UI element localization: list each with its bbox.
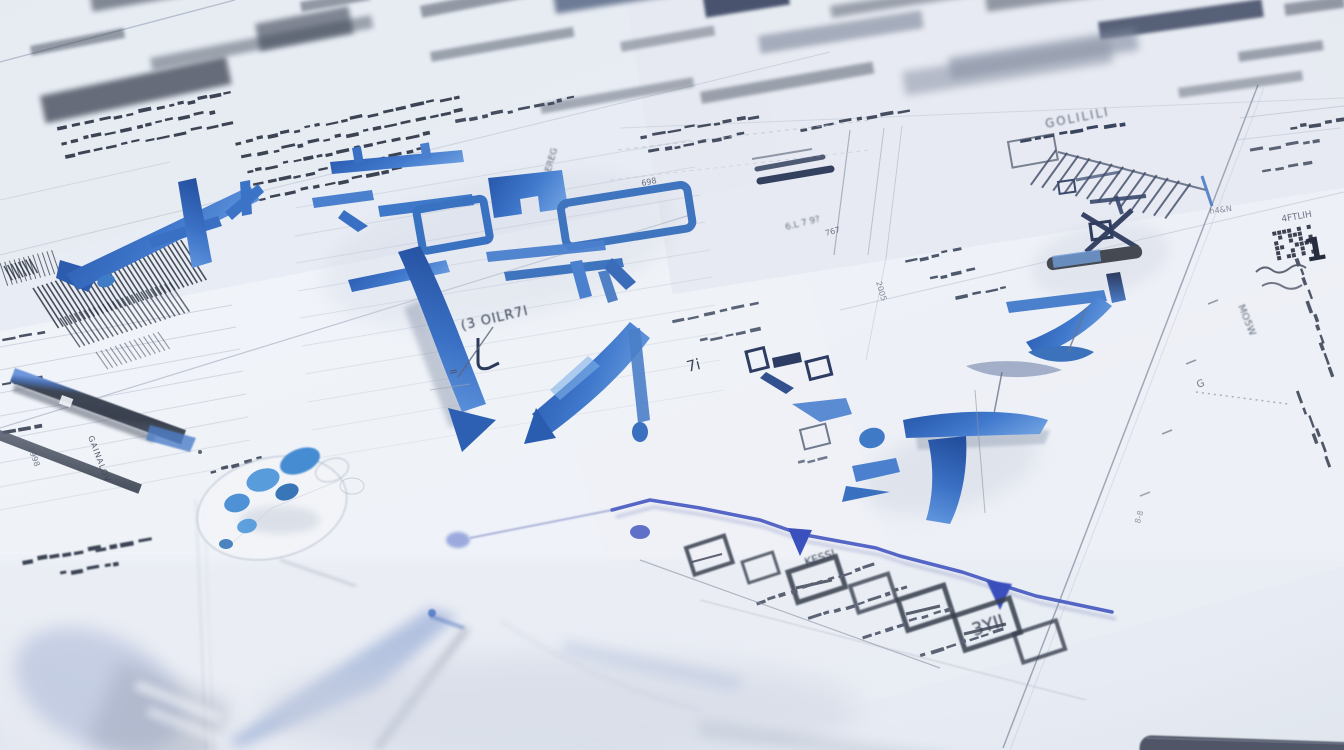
- document-collage-scene: GOLILILISEREG69876720056.L 7 9?1998GAINA…: [0, 0, 1344, 750]
- trend-line-chart-ell: [446, 532, 470, 548]
- scene-svg: GOLILILISEREG69876720056.L 7 9?1998GAINA…: [0, 0, 1344, 750]
- pie-blob: [219, 539, 233, 549]
- trend-node: [630, 525, 650, 539]
- gradient-progress-bar-ell: [198, 450, 202, 454]
- glyph-stroke: [240, 180, 252, 216]
- center-glyph-cluster-ell: [632, 422, 648, 442]
- bottom-blur-region-ell: [428, 609, 436, 617]
